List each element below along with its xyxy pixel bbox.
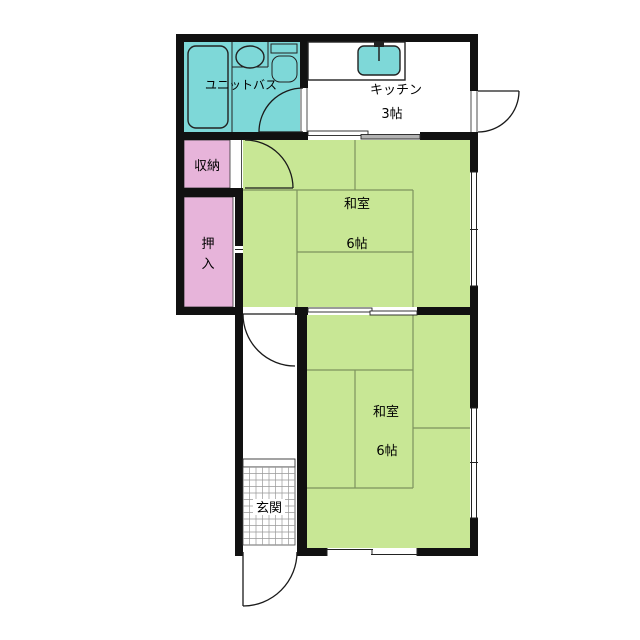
wall [235,253,243,307]
washitsu-bottom-size-label: 6帖 [376,444,397,459]
oshiire-label-char1: 押 [201,237,214,252]
faucet-icon [374,42,384,47]
floor-plan: ユニットバス キッチン 3帖 収納 押 入 和室 6帖 和室 6帖 玄関 [0,0,640,640]
unit-bath-label: ユニットバス [205,78,277,92]
wall [470,286,478,408]
washitsu-bottom-floor [307,315,470,548]
washbasin-icon [236,46,264,68]
wall [176,34,184,315]
wall [176,34,478,42]
wall [176,188,243,197]
sliding-panel [308,131,368,136]
wall [417,307,478,315]
kitchen-fixtures [308,42,405,80]
wall [420,132,478,140]
entrance-step [243,459,295,467]
washitsu-middle-size-label: 6帖 [346,237,367,252]
washitsu-bottom-label: 和室 [373,404,399,420]
wall [300,42,308,88]
sliding-panel [361,135,420,140]
wall [176,307,243,315]
wall [235,307,243,556]
washitsu-middle-floor [243,140,470,307]
wall [235,197,243,246]
wall [417,548,478,556]
oshiire-floor [184,197,233,307]
toilet-tank-icon [271,44,297,53]
wall [297,315,307,548]
sliding-panel [370,311,417,315]
kitchen-size-label: 3帖 [381,107,402,122]
kitchen-label: キッチン [370,83,422,98]
window-middle-room [470,172,478,286]
genkan-label: 玄関 [256,501,282,516]
washitsu-middle-label: 和室 [344,196,370,212]
wall [295,307,308,315]
wall [176,132,308,140]
wall [470,34,478,91]
sliding-panel [308,308,372,312]
window-bottom-wall [327,548,417,556]
wall [470,132,478,172]
oshiire-label-char2: 入 [201,257,214,272]
wall [297,548,327,556]
window-bottom-room-right [470,408,478,518]
storage-label: 収納 [194,159,220,174]
